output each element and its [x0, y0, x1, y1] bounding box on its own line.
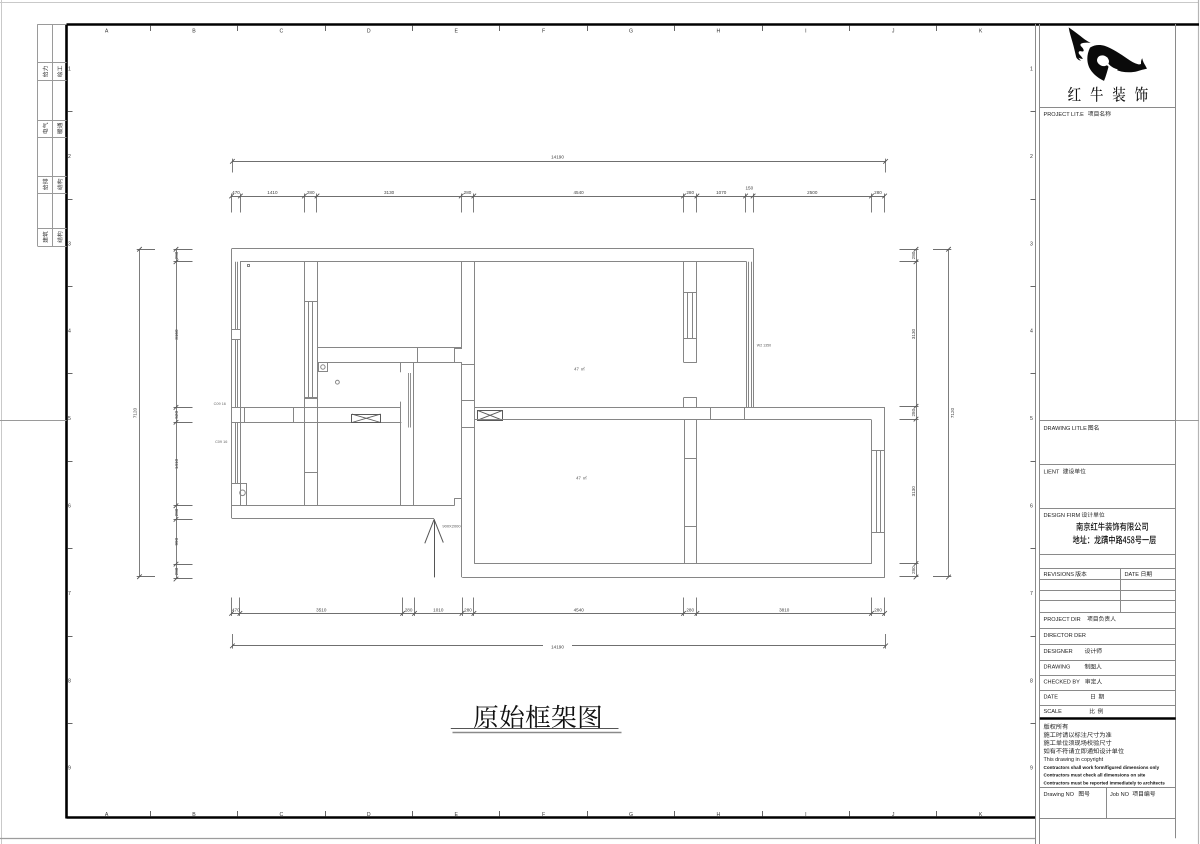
- svg-text:C09 16: C09 16: [215, 440, 227, 444]
- svg-text:14190: 14190: [551, 155, 564, 160]
- svg-text:H: H: [717, 812, 721, 818]
- svg-text:4: 4: [68, 329, 71, 335]
- svg-text:47: 47: [574, 367, 579, 372]
- svg-text:B: B: [192, 29, 196, 35]
- svg-text:Contractors must be reported i: Contractors must be reported immediately…: [1044, 780, 1166, 785]
- svg-text:3130: 3130: [911, 328, 916, 339]
- svg-text:D: D: [367, 29, 371, 35]
- svg-text:PROJECT LIT.E: PROJECT LIT.E: [1044, 112, 1085, 118]
- svg-text:C09 16: C09 16: [214, 402, 226, 406]
- svg-text:8: 8: [68, 678, 71, 684]
- svg-text:4: 4: [1030, 329, 1033, 335]
- svg-text:Contractors shall work form/fi: Contractors shall work form/figured dime…: [1044, 765, 1160, 770]
- svg-text:3: 3: [68, 241, 71, 247]
- svg-text:1410: 1410: [174, 458, 179, 469]
- svg-text:C: C: [280, 812, 284, 818]
- svg-text:E: E: [454, 812, 458, 818]
- svg-text:47: 47: [576, 476, 581, 481]
- svg-text:280: 280: [174, 508, 179, 516]
- svg-text:K: K: [979, 812, 983, 818]
- svg-text:7: 7: [68, 591, 71, 597]
- svg-text:8: 8: [1030, 678, 1033, 684]
- svg-text:1: 1: [68, 67, 71, 73]
- svg-text:280: 280: [686, 607, 694, 612]
- svg-text:3130: 3130: [911, 486, 916, 497]
- svg-text:150: 150: [745, 186, 753, 191]
- svg-text:3: 3: [1030, 241, 1033, 247]
- svg-text:14190: 14190: [551, 645, 564, 650]
- svg-text:F: F: [542, 29, 545, 35]
- svg-text:280: 280: [464, 190, 472, 195]
- svg-text:A: A: [105, 29, 109, 35]
- svg-text:520: 520: [174, 411, 179, 419]
- svg-text:280: 280: [686, 190, 694, 195]
- svg-text:1070: 1070: [716, 190, 727, 195]
- svg-text:D: D: [367, 812, 371, 818]
- svg-text:I: I: [805, 29, 806, 35]
- svg-text:280: 280: [874, 190, 882, 195]
- svg-text:4540: 4540: [574, 607, 585, 612]
- svg-text:J: J: [892, 812, 895, 818]
- svg-text:DATE: DATE: [1125, 572, 1140, 578]
- svg-text:5: 5: [1030, 416, 1033, 422]
- svg-text:7120: 7120: [132, 407, 137, 418]
- svg-text:4540: 4540: [573, 190, 584, 195]
- svg-text:3810: 3810: [779, 607, 790, 612]
- svg-text:2500: 2500: [807, 190, 818, 195]
- svg-text:280: 280: [405, 607, 413, 612]
- svg-text:DESIGN FIRM: DESIGN FIRM: [1044, 513, 1081, 519]
- svg-text:J: J: [892, 29, 895, 35]
- svg-text:B: B: [192, 812, 196, 818]
- svg-text:I: I: [805, 812, 806, 818]
- svg-text:1010: 1010: [433, 607, 444, 612]
- svg-text:G: G: [629, 812, 633, 818]
- svg-text:280: 280: [174, 251, 179, 259]
- svg-text:470: 470: [232, 190, 240, 195]
- svg-text:F: F: [542, 812, 545, 818]
- svg-text:W2 1350: W2 1350: [757, 344, 771, 348]
- svg-text:3130: 3130: [384, 190, 395, 195]
- svg-text:6: 6: [1030, 504, 1033, 510]
- svg-text:DIRECTOR DER: DIRECTOR DER: [1044, 633, 1086, 639]
- svg-text:DRAWING LITLE: DRAWING LITLE: [1044, 426, 1088, 432]
- svg-text:990: 990: [174, 537, 179, 545]
- svg-text:6: 6: [68, 504, 71, 510]
- svg-text:280: 280: [307, 190, 315, 195]
- svg-text:DRAWING: DRAWING: [1044, 665, 1071, 671]
- svg-text:C: C: [280, 29, 284, 35]
- svg-text:G: G: [629, 29, 633, 35]
- svg-text:REVISIONS: REVISIONS: [1044, 572, 1075, 578]
- svg-text:DATE: DATE: [1044, 695, 1059, 701]
- svg-text:9: 9: [1030, 766, 1033, 772]
- svg-text:7120: 7120: [950, 407, 955, 418]
- svg-text:1410: 1410: [267, 190, 278, 195]
- svg-text:This drawing in copyright: This drawing in copyright: [1044, 757, 1104, 763]
- svg-text:DESIGNER: DESIGNER: [1044, 649, 1073, 655]
- svg-text:Drawing NO: Drawing NO: [1044, 792, 1075, 798]
- svg-text:900X2000: 900X2000: [442, 524, 461, 529]
- svg-text:H: H: [717, 29, 721, 35]
- svg-text:470: 470: [232, 607, 240, 612]
- svg-text:SCALE: SCALE: [1044, 709, 1063, 715]
- svg-text:Job NO: Job NO: [1110, 792, 1130, 798]
- svg-text:280: 280: [464, 607, 472, 612]
- svg-text:280: 280: [911, 566, 916, 574]
- svg-text:280: 280: [174, 567, 179, 575]
- svg-text:3510: 3510: [316, 607, 327, 612]
- svg-text:280: 280: [911, 408, 916, 416]
- svg-text:K: K: [979, 29, 983, 35]
- svg-text:PROJECT DIR: PROJECT DIR: [1044, 617, 1081, 623]
- svg-text:280: 280: [874, 607, 882, 612]
- svg-text:9: 9: [68, 766, 71, 772]
- svg-text:E: E: [454, 29, 458, 35]
- svg-text:3160: 3160: [174, 329, 179, 340]
- svg-text:Contractors must check all dim: Contractors must check all dimensions on…: [1044, 773, 1146, 778]
- svg-text:LIENT: LIENT: [1044, 469, 1060, 475]
- svg-text:2: 2: [1030, 154, 1033, 160]
- svg-text:A: A: [105, 812, 109, 818]
- svg-text:2: 2: [68, 154, 71, 160]
- svg-text:CHECKED BY: CHECKED BY: [1044, 680, 1081, 686]
- svg-text:1: 1: [1030, 67, 1033, 73]
- svg-text:280: 280: [911, 251, 916, 259]
- svg-text:7: 7: [1030, 591, 1033, 597]
- svg-text:5: 5: [68, 416, 71, 422]
